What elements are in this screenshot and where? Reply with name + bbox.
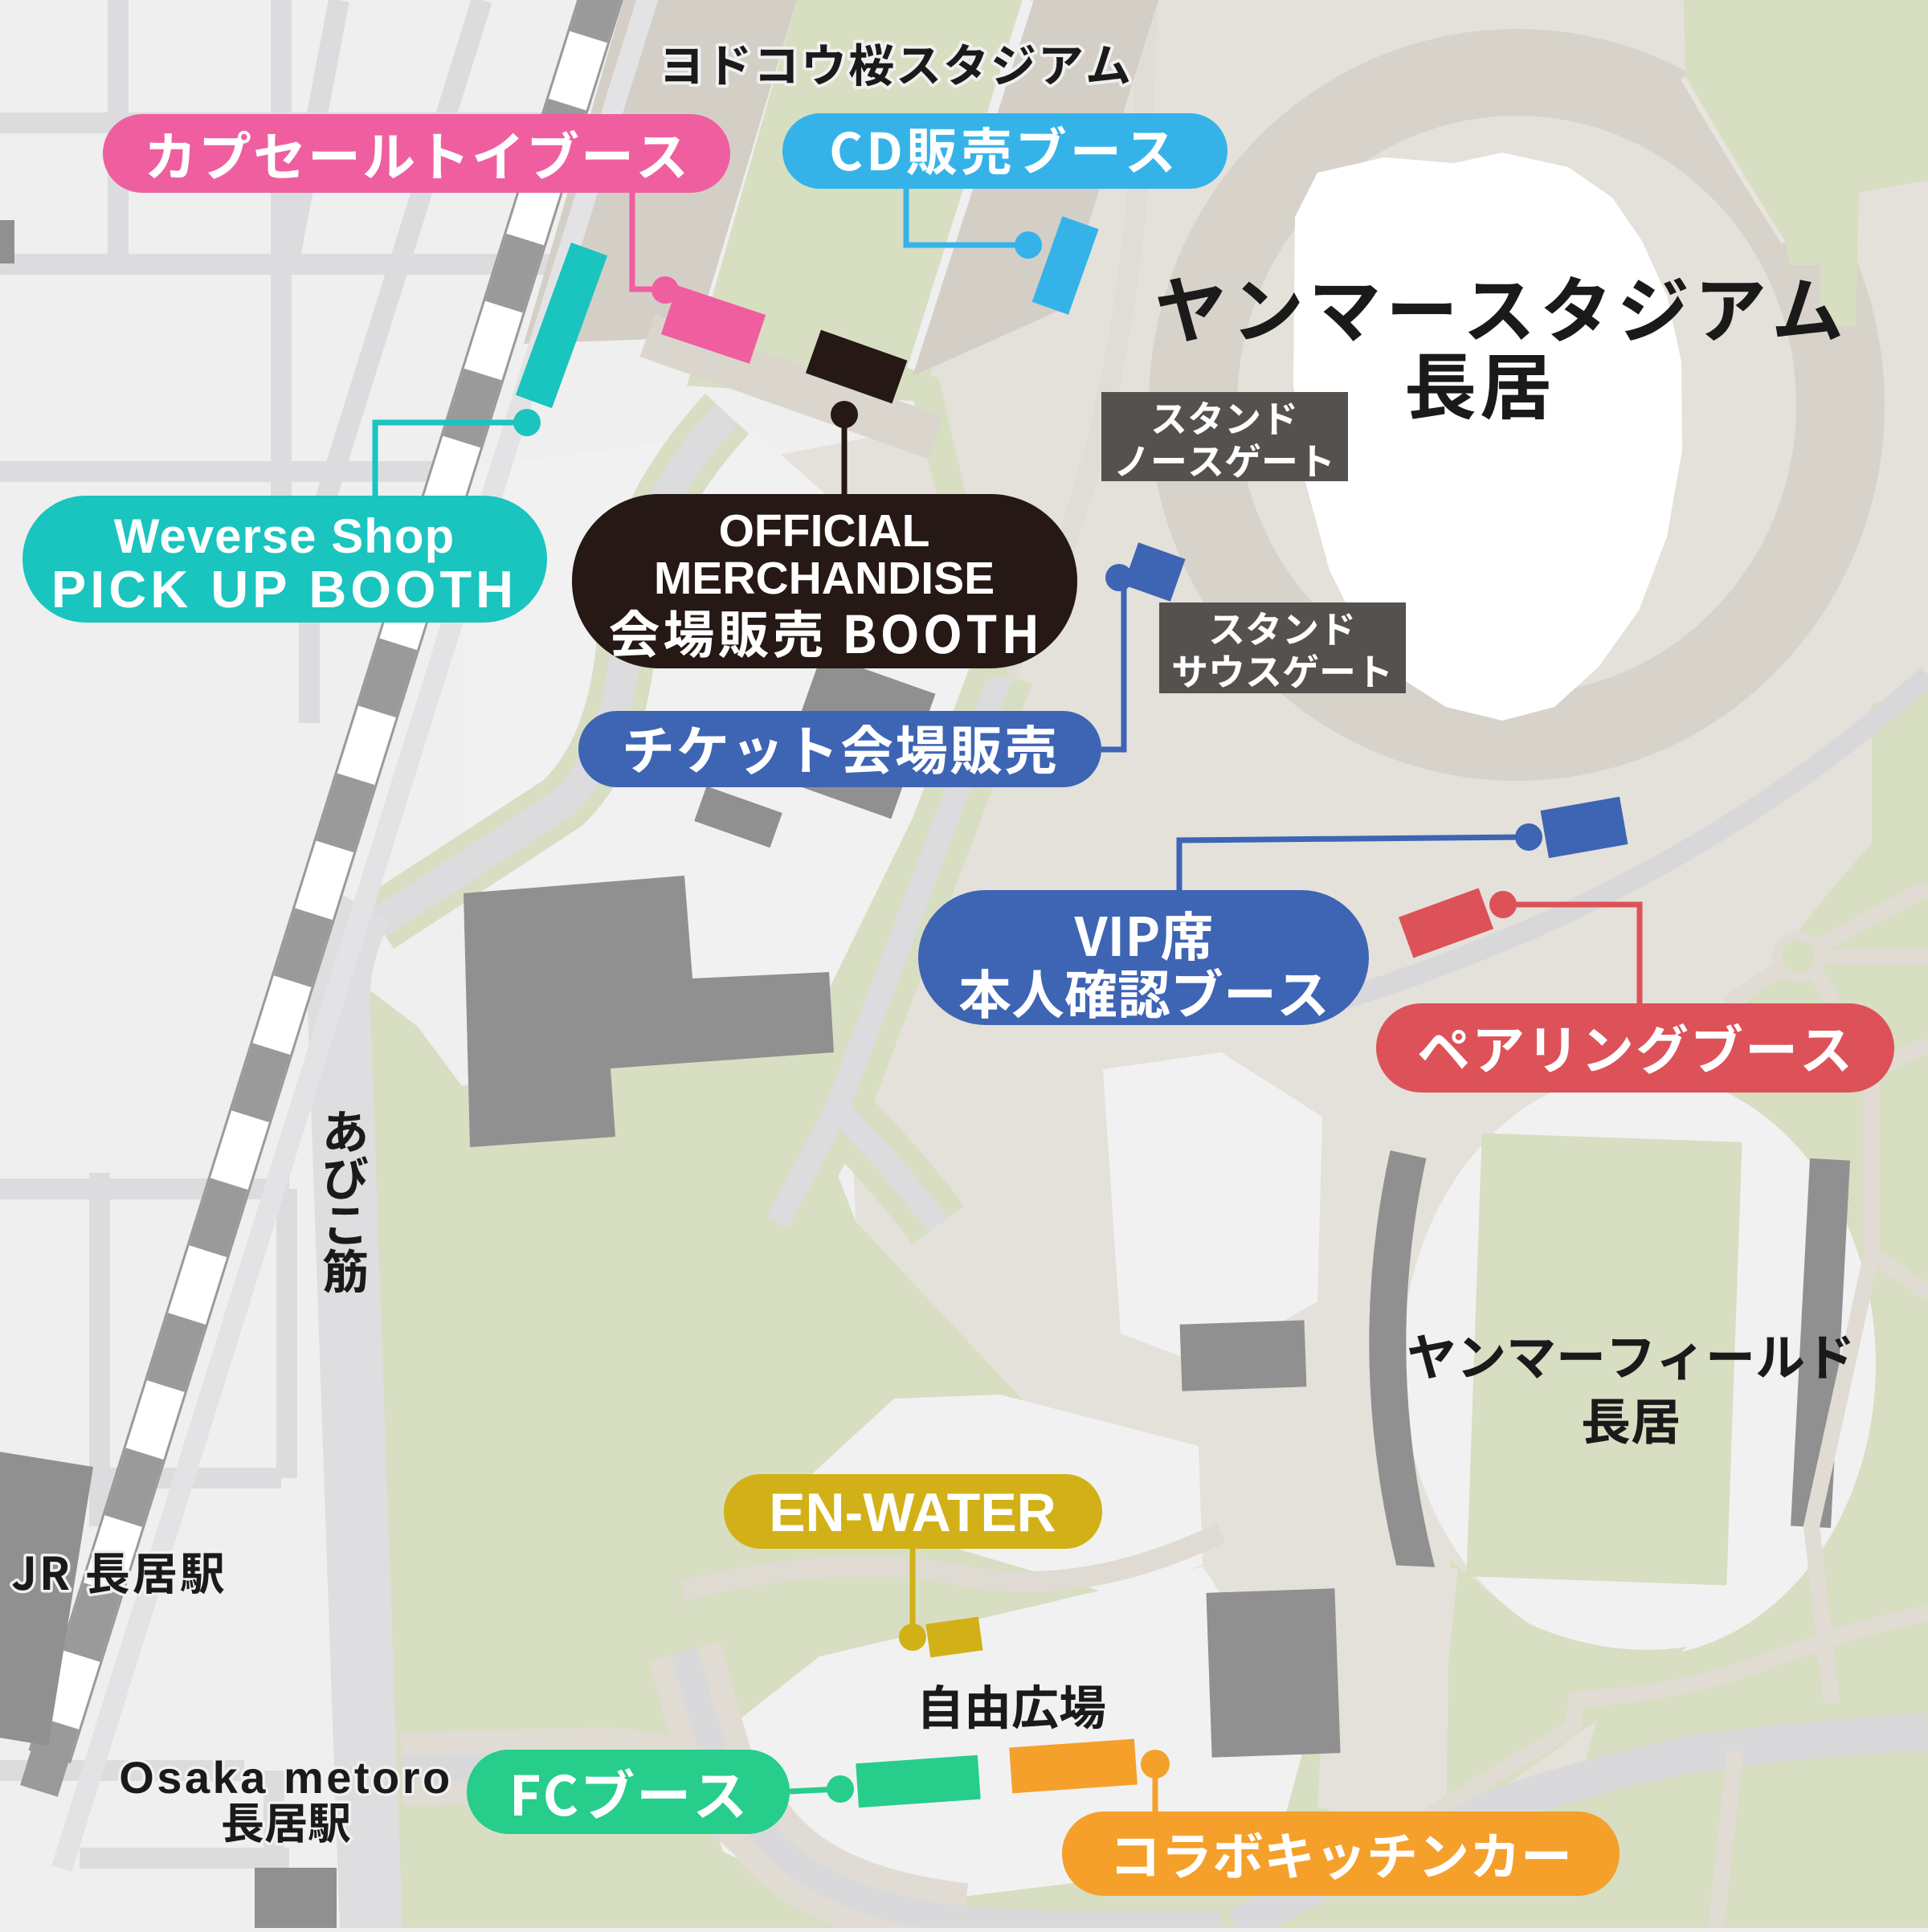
svg-text:Weverse Shop: Weverse Shop [114,509,455,563]
svg-text:MERCHANDISE: MERCHANDISE [654,553,995,604]
svg-text:PICK UP BOOTH: PICK UP BOOTH [51,560,517,619]
svg-text:Osaka metoro: Osaka metoro [119,1752,453,1803]
svg-text:EN-WATER: EN-WATER [769,1482,1056,1543]
svg-text:OFFICIAL: OFFICIAL [719,505,930,557]
